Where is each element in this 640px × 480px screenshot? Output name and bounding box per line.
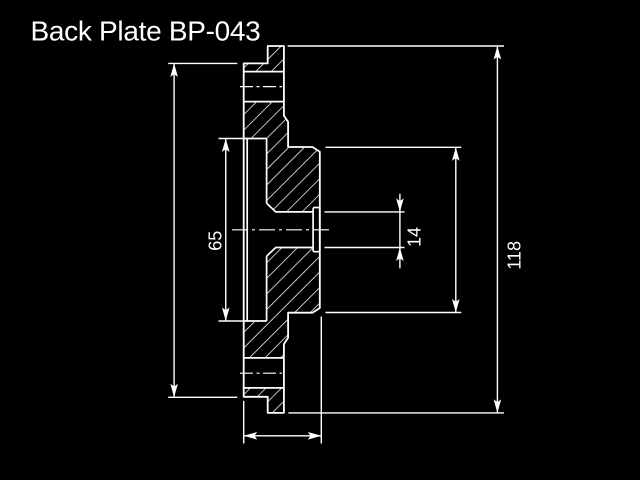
- svg-text:14: 14: [405, 227, 425, 247]
- svg-text:Back Plate BP-043: Back Plate BP-043: [31, 16, 261, 47]
- svg-text:65: 65: [205, 231, 225, 251]
- svg-text:118: 118: [505, 241, 525, 270]
